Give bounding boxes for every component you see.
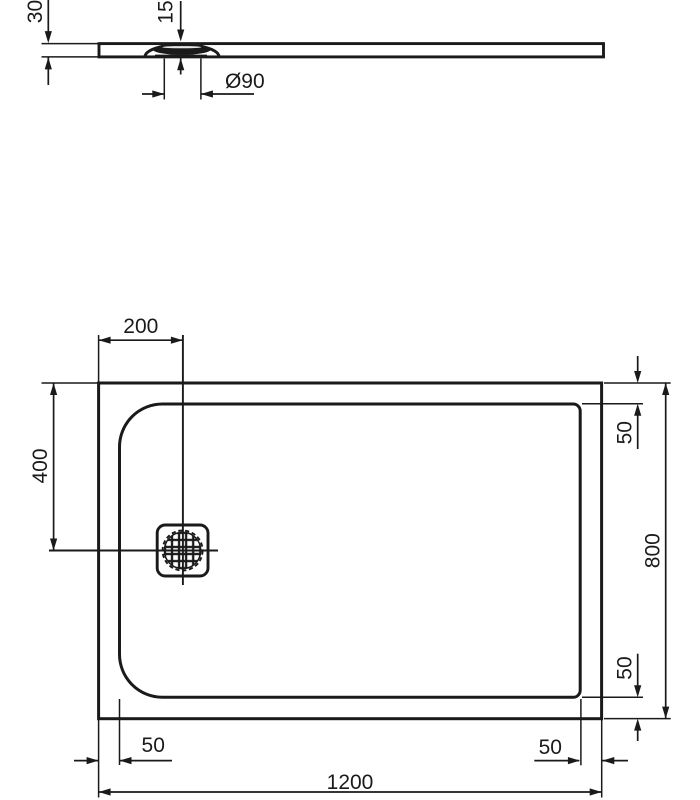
svg-text:50: 50 (142, 734, 165, 757)
svg-text:Ø90: Ø90 (225, 70, 265, 93)
svg-text:1200: 1200 (327, 771, 374, 794)
svg-text:50: 50 (539, 736, 562, 759)
svg-text:50: 50 (614, 656, 637, 679)
svg-text:800: 800 (642, 533, 665, 568)
svg-text:400: 400 (29, 448, 52, 483)
svg-text:200: 200 (123, 315, 158, 338)
svg-text:15: 15 (155, 0, 178, 23)
svg-text:50: 50 (614, 421, 637, 444)
svg-text:30: 30 (24, 0, 47, 23)
